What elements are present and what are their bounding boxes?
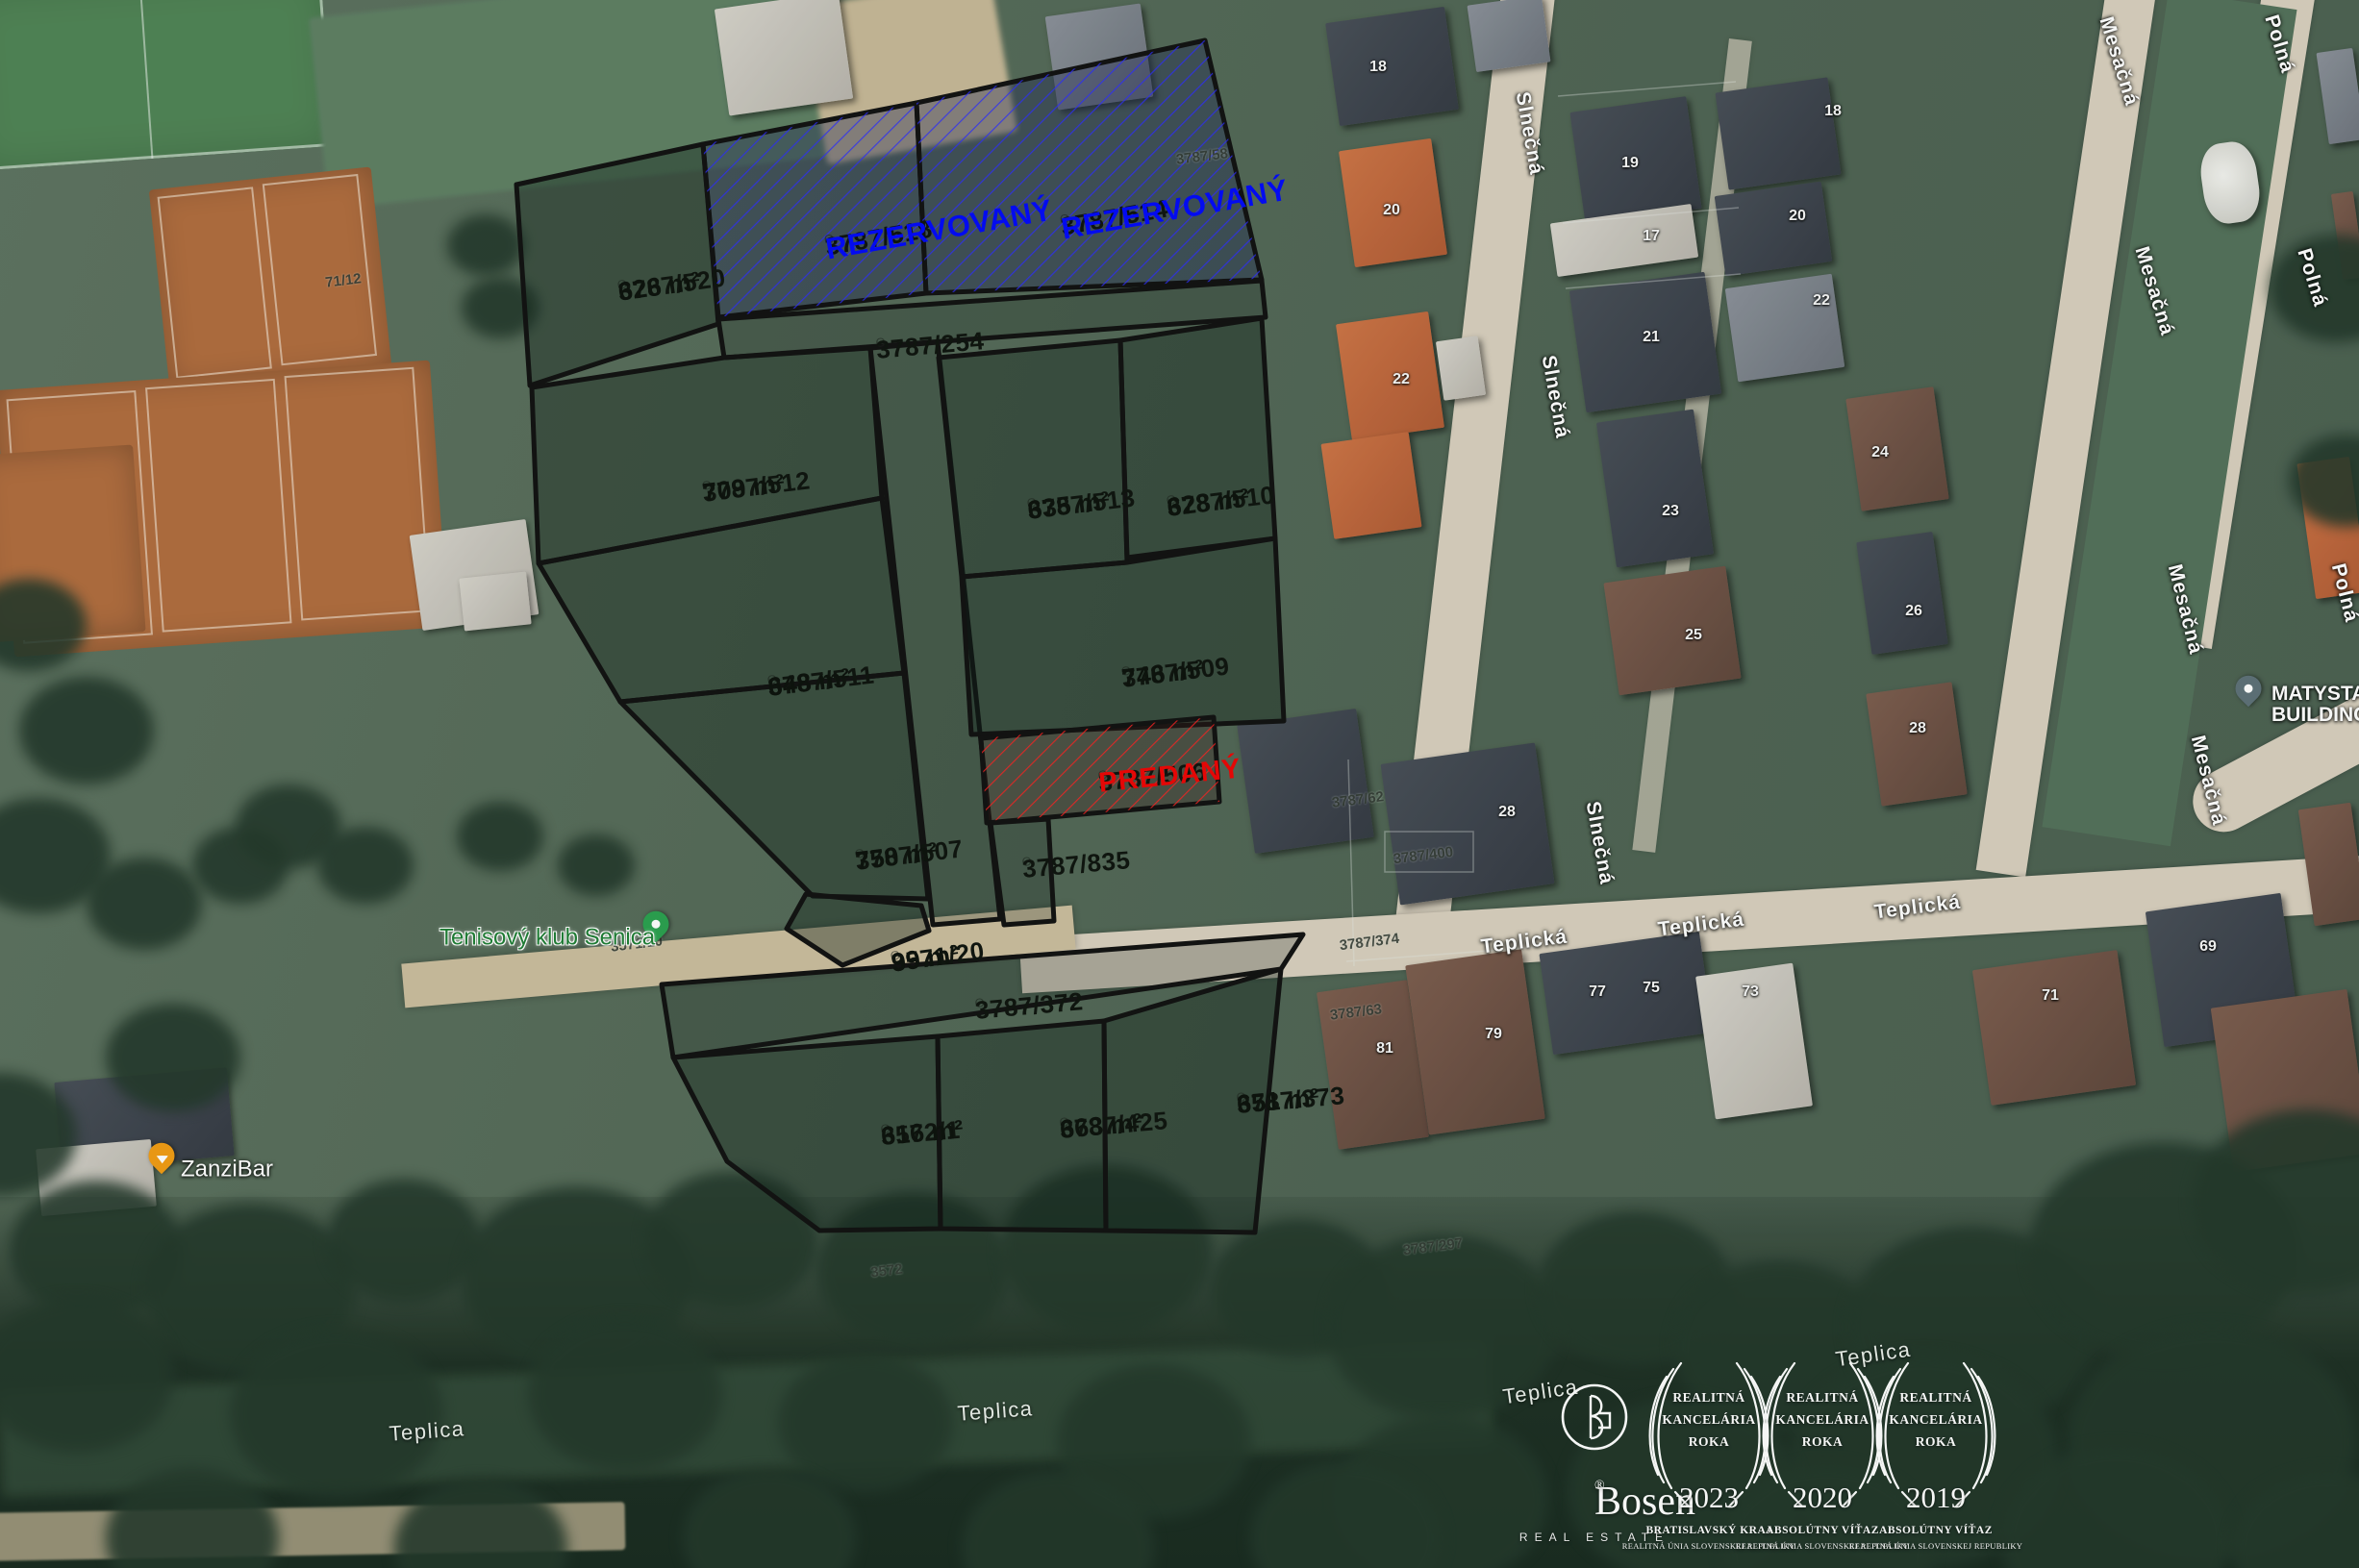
award-badge: REALITNÁKANCELÁRIAROKA2019ABSOLÚTNY VÍŤA… <box>1864 1338 2008 1564</box>
badge-title-line: KANCELÁRIA <box>1864 1408 2008 1431</box>
badge-organization: REALITNÁ ÚNIA SLOVENSKEJ REPUBLIKY <box>1835 1541 2037 1551</box>
badge-title-line: REALITNÁ <box>1864 1386 2008 1408</box>
badge-title-line: ROKA <box>1864 1431 2008 1453</box>
satellite-map: ϴ3787/520626 m²ϴ3787/518REZERVOVANÝϴ3787… <box>0 0 2359 1568</box>
badge-subtitle: ABSOLÚTNY VÍŤAZ <box>1845 1525 2027 1536</box>
badge-title: REALITNÁKANCELÁRIAROKA <box>1864 1386 2008 1453</box>
award-badges: REALITNÁKANCELÁRIAROKA2023BRATISLAVSKÝ K… <box>0 0 2359 1568</box>
badge-year: 2019 <box>1864 1481 2008 1515</box>
